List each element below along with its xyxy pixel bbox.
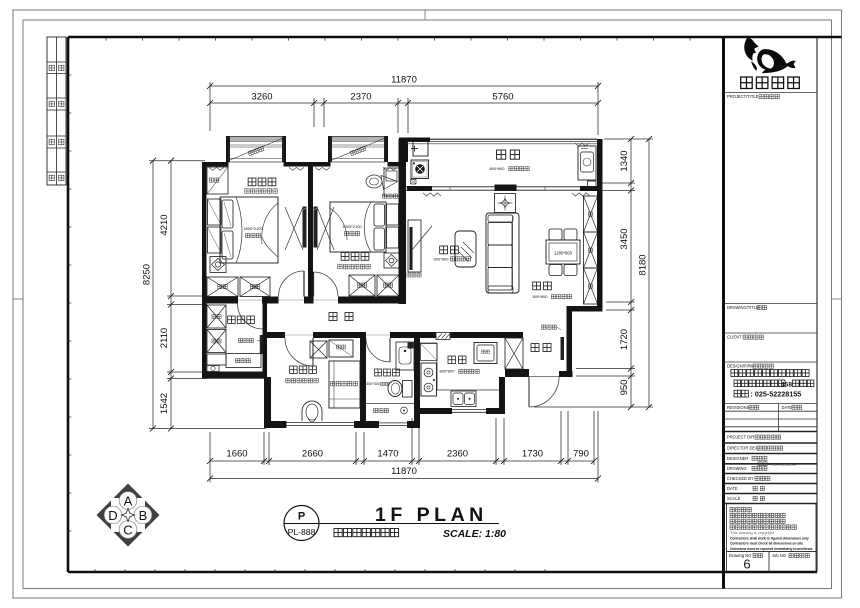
svg-text:: 025-52228155: : 025-52228155 xyxy=(751,390,802,399)
svg-text:A: A xyxy=(124,494,133,509)
svg-text:2370: 2370 xyxy=(350,92,371,103)
svg-text:1500*2100: 1500*2100 xyxy=(342,224,362,229)
svg-text:1730: 1730 xyxy=(522,449,543,460)
svg-text:2110: 2110 xyxy=(159,328,170,348)
svg-text:800*800: 800*800 xyxy=(533,294,549,299)
svg-text:790: 790 xyxy=(573,449,589,460)
svg-text:B: B xyxy=(139,508,148,523)
svg-text:458: 458 xyxy=(781,381,792,388)
svg-text:8250: 8250 xyxy=(142,264,153,285)
svg-text:CHECKED BY: CHECKED BY xyxy=(727,476,754,481)
svg-text:1200*600: 1200*600 xyxy=(554,251,573,256)
svg-text:300*300: 300*300 xyxy=(366,382,379,386)
svg-text:3450: 3450 xyxy=(619,228,630,249)
svg-text:DRAWING/TITLE: DRAWING/TITLE xyxy=(727,305,759,310)
svg-text:P: P xyxy=(298,511,305,523)
svg-text:Contractors shall work to figu: Contractors shall work to figured dimens… xyxy=(730,536,809,540)
svg-text:DESIGNER: DESIGNER xyxy=(727,456,748,461)
svg-text:DRAWING: DRAWING xyxy=(727,466,747,471)
svg-text:C: C xyxy=(123,523,132,538)
svg-text:5760: 5760 xyxy=(492,92,513,103)
svg-text:3260: 3260 xyxy=(251,92,272,103)
svg-text:DATE: DATE xyxy=(782,405,793,410)
svg-text:1470: 1470 xyxy=(377,449,398,460)
svg-text:D: D xyxy=(108,508,117,523)
svg-text:4210: 4210 xyxy=(159,214,170,235)
svg-text:8180: 8180 xyxy=(638,254,649,275)
svg-text:PL-888: PL-888 xyxy=(288,527,316,537)
svg-text:1720: 1720 xyxy=(619,329,630,350)
svg-text:DESIGN/FIRM: DESIGN/FIRM xyxy=(727,364,754,369)
svg-text:Contractors must check all dim: Contractors must check all dimensions on… xyxy=(730,542,803,546)
svg-text:11870: 11870 xyxy=(391,75,417,86)
svg-text:2660: 2660 xyxy=(302,449,323,460)
svg-text:950: 950 xyxy=(619,380,630,396)
svg-text:2360: 2360 xyxy=(447,449,468,460)
svg-text:800*800: 800*800 xyxy=(440,369,456,374)
svg-text:PROJECT DIR: PROJECT DIR xyxy=(727,435,754,440)
svg-text:DATE: DATE xyxy=(727,486,738,491)
svg-text:SCALE: SCALE xyxy=(727,496,741,501)
svg-text:11870: 11870 xyxy=(391,466,417,477)
svg-text:This drawing is copyright: This drawing is copyright xyxy=(730,530,775,535)
svg-text:Job NO: Job NO xyxy=(772,553,786,558)
svg-text:CLIENT: CLIENT xyxy=(727,335,742,340)
svg-text:1F PLAN: 1F PLAN xyxy=(375,504,488,526)
svg-text:DIRECTOR DEA: DIRECTOR DEA xyxy=(727,446,758,451)
svg-text:1340: 1340 xyxy=(619,150,630,171)
svg-text:PROJECT/TITLE: PROJECT/TITLE xyxy=(727,94,759,99)
svg-text:REVISIONS: REVISIONS xyxy=(727,405,750,410)
svg-text:800*800: 800*800 xyxy=(490,166,506,171)
svg-text:SCALE: 1:80: SCALE: 1:80 xyxy=(443,528,506,540)
svg-text:800*800: 800*800 xyxy=(434,256,450,261)
svg-text:1542: 1542 xyxy=(159,393,170,414)
svg-text:1800*2100: 1800*2100 xyxy=(243,226,263,231)
svg-text:1660: 1660 xyxy=(226,449,247,460)
svg-text:Omissions must be reported imm: Omissions must be reported immediately t… xyxy=(730,547,813,551)
svg-text:6: 6 xyxy=(743,557,750,572)
